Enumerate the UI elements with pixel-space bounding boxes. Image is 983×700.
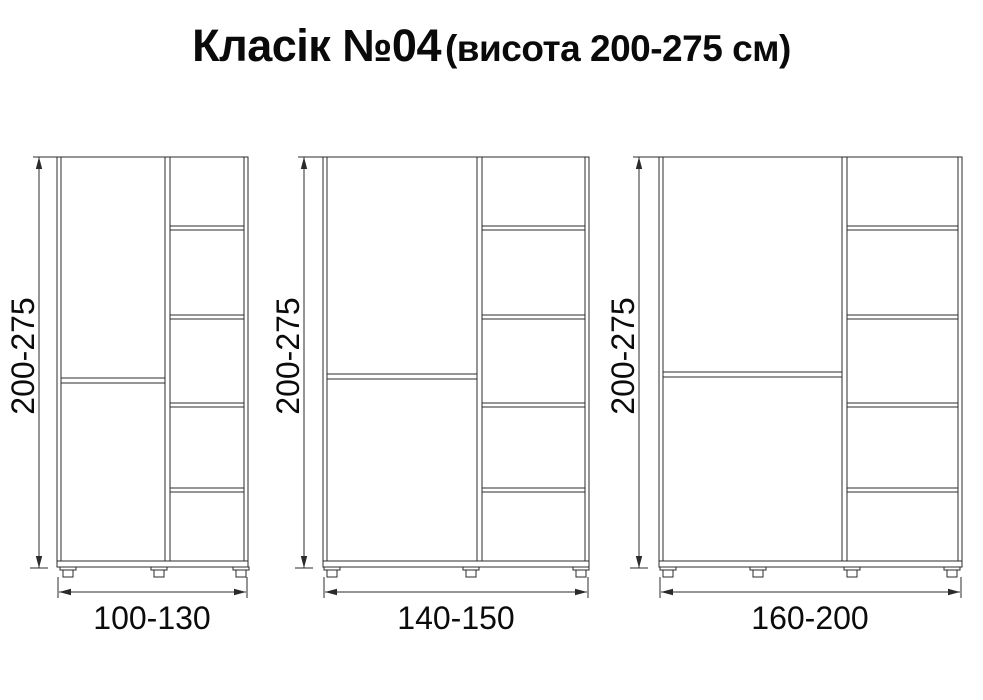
shelf bbox=[482, 403, 585, 407]
height-dimension-label: 200-275 bbox=[605, 297, 641, 414]
door-divider bbox=[663, 372, 842, 377]
arrow-down-icon bbox=[36, 556, 42, 568]
shelf bbox=[170, 315, 244, 319]
foot bbox=[944, 567, 960, 577]
shelf bbox=[847, 488, 958, 492]
shelf bbox=[482, 488, 585, 492]
wardrobe-diagram: 200-275 100-130 bbox=[0, 0, 983, 700]
arrow-right-icon bbox=[948, 589, 960, 595]
foot bbox=[151, 567, 167, 577]
arrow-left-icon bbox=[661, 589, 673, 595]
shelf bbox=[847, 403, 958, 407]
arrow-up-icon bbox=[636, 157, 642, 169]
door-divider bbox=[61, 378, 165, 383]
shelf bbox=[482, 226, 585, 230]
shelf bbox=[482, 315, 585, 319]
arrow-left-icon bbox=[59, 589, 71, 595]
shelf bbox=[170, 226, 244, 230]
width-dimension-label: 160-200 bbox=[751, 600, 868, 636]
foot bbox=[750, 567, 766, 577]
cabinet-outline bbox=[659, 157, 962, 567]
foot bbox=[463, 567, 479, 577]
cabinet-outline bbox=[323, 157, 589, 567]
height-dimension-label: 200-275 bbox=[5, 297, 41, 414]
vertical-divider bbox=[165, 157, 170, 561]
cabinet-outline bbox=[57, 157, 248, 567]
shelf bbox=[847, 315, 958, 319]
foot bbox=[233, 567, 249, 577]
door-divider bbox=[327, 374, 477, 379]
cabinet-1: 200-275 100-130 bbox=[5, 157, 249, 636]
foot bbox=[60, 567, 76, 577]
arrow-right-icon bbox=[234, 589, 246, 595]
arrow-left-icon bbox=[325, 589, 337, 595]
arrow-right-icon bbox=[575, 589, 587, 595]
arrow-up-icon bbox=[301, 157, 307, 169]
cabinet-2: 200-275 140-150 bbox=[270, 157, 589, 636]
shelf bbox=[170, 403, 244, 407]
shelf bbox=[170, 488, 244, 492]
arrow-down-icon bbox=[636, 556, 642, 568]
foot bbox=[324, 567, 340, 577]
cabinet-3: 200-275 160-200 bbox=[605, 157, 962, 636]
vertical-divider bbox=[842, 157, 847, 561]
arrow-down-icon bbox=[301, 556, 307, 568]
arrow-up-icon bbox=[36, 157, 42, 169]
shelf bbox=[847, 226, 958, 230]
width-dimension-label: 140-150 bbox=[397, 600, 514, 636]
foot bbox=[573, 567, 589, 577]
foot bbox=[660, 567, 676, 577]
vertical-divider bbox=[477, 157, 482, 561]
foot bbox=[844, 567, 860, 577]
width-dimension-label: 100-130 bbox=[93, 600, 210, 636]
height-dimension-label: 200-275 bbox=[270, 297, 306, 414]
